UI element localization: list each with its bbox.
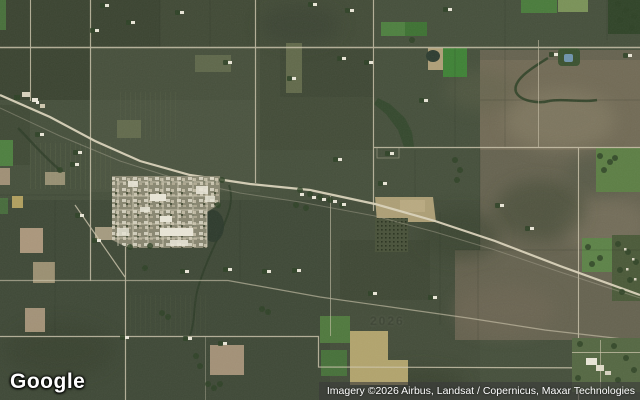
attribution-bar: Imagery ©2026 Airbus, Landsat / Copernic…	[319, 382, 640, 400]
satellite-imagery-art	[0, 0, 640, 400]
google-logo[interactable]: Google	[10, 370, 85, 394]
image-grain	[0, 0, 640, 400]
satellite-map-canvas[interactable]: 2026 Google Imagery ©2026 Airbus, Landsa…	[0, 0, 640, 400]
attribution-text: Imagery ©2026 Airbus, Landsat / Copernic…	[327, 385, 635, 397]
imagery-watermark: 2026	[370, 314, 405, 328]
